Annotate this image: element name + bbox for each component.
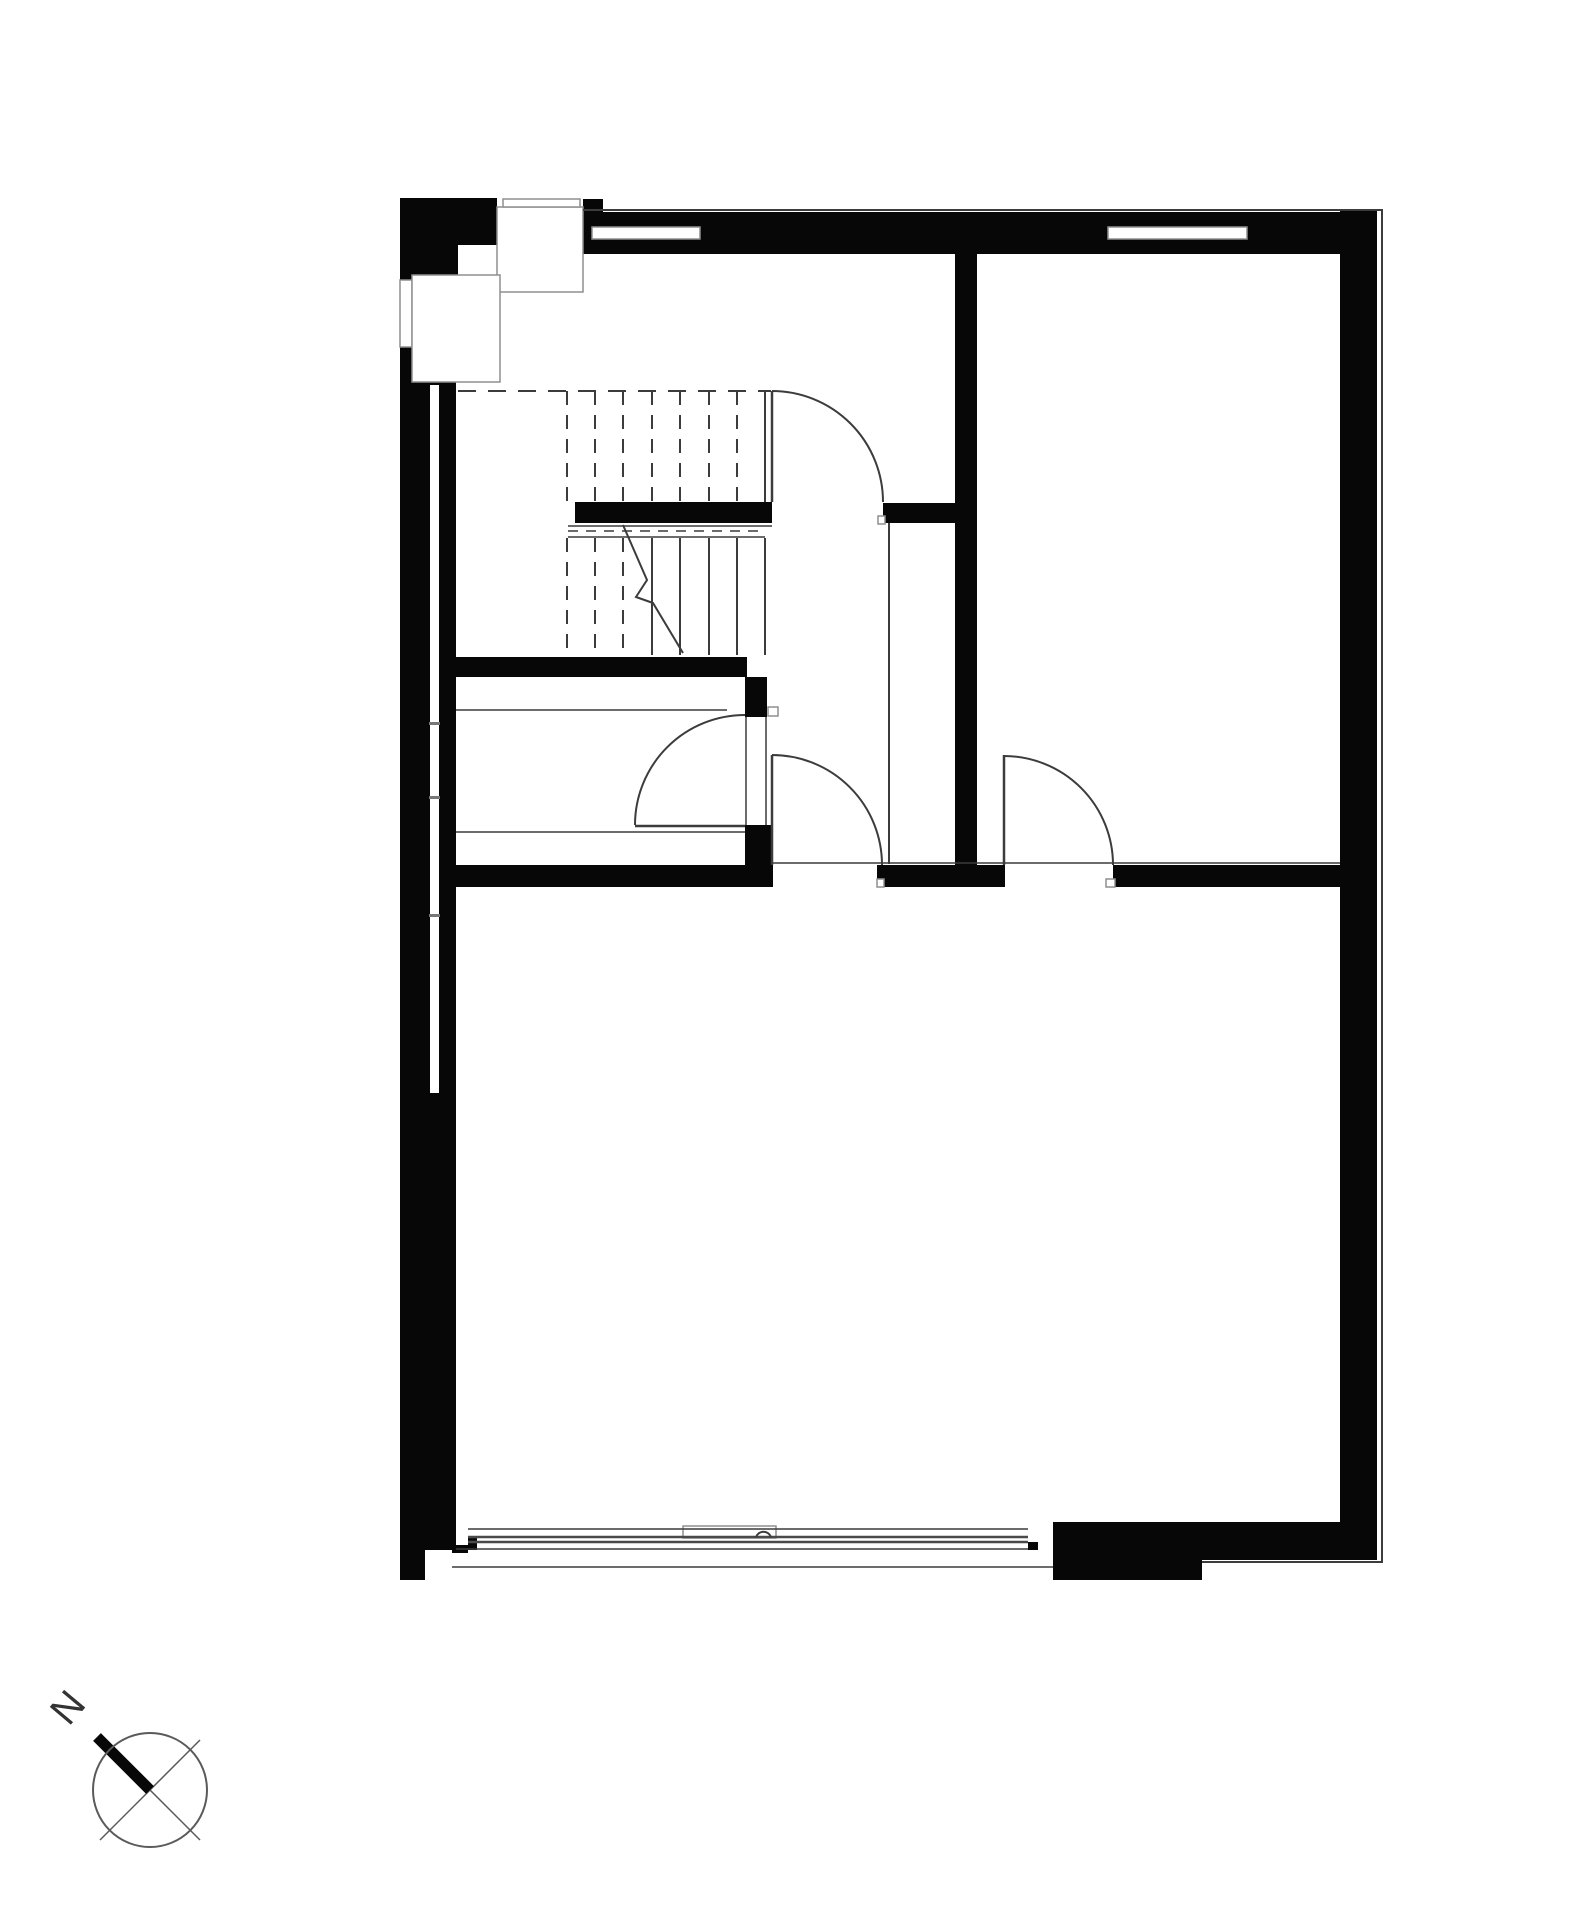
stair-door-arc — [772, 391, 883, 502]
slot-tick-1 — [429, 722, 440, 725]
glass-end-tick-right — [1028, 1542, 1038, 1550]
mid-wall-left — [456, 865, 772, 887]
compass-north-label: N — [42, 1682, 94, 1732]
left-wall-window-slot — [430, 385, 439, 1093]
glass-end-tick-left — [468, 1538, 477, 1550]
right-exterior-wall — [1340, 210, 1377, 1551]
top-left-chimney-block-a — [400, 198, 497, 245]
chimney-square-a — [497, 207, 583, 292]
bottom-right-wall-block — [1053, 1522, 1377, 1560]
chimney-top-bar — [503, 199, 580, 207]
stair-landing-half-wall — [575, 502, 772, 523]
closet-door-arc — [635, 715, 745, 825]
door-stop-stairs — [878, 516, 885, 524]
top-window-1 — [592, 227, 700, 239]
slot-tick-2 — [429, 796, 440, 799]
hall-door-arc — [772, 755, 882, 865]
mid-wall-center — [877, 865, 1005, 887]
compass-needle — [97, 1737, 150, 1790]
left-window-upper — [400, 280, 412, 347]
door-stop-hall — [877, 879, 884, 887]
closet-door-jamb-upper — [745, 677, 767, 717]
door-stop-closet — [768, 707, 778, 716]
slot-tick-3 — [429, 914, 440, 917]
under-stair-wall — [456, 657, 747, 677]
mid-wall-right — [1113, 865, 1340, 887]
stair-hall-wall-segment — [883, 503, 957, 523]
floor-plan-drawing: N — [0, 0, 1584, 1920]
left-wall-foot — [400, 1550, 425, 1580]
left-exterior-wall — [400, 198, 456, 1550]
top-window-2 — [1108, 227, 1247, 239]
bedroom-door-arc — [1004, 756, 1113, 865]
floor-plan-page: N — [0, 0, 1584, 1920]
interior-wall-vertical — [955, 254, 977, 865]
bottom-right-wall-step — [1053, 1560, 1202, 1580]
chimney-square-c — [412, 275, 500, 382]
door-stop-bedroom — [1106, 879, 1115, 887]
